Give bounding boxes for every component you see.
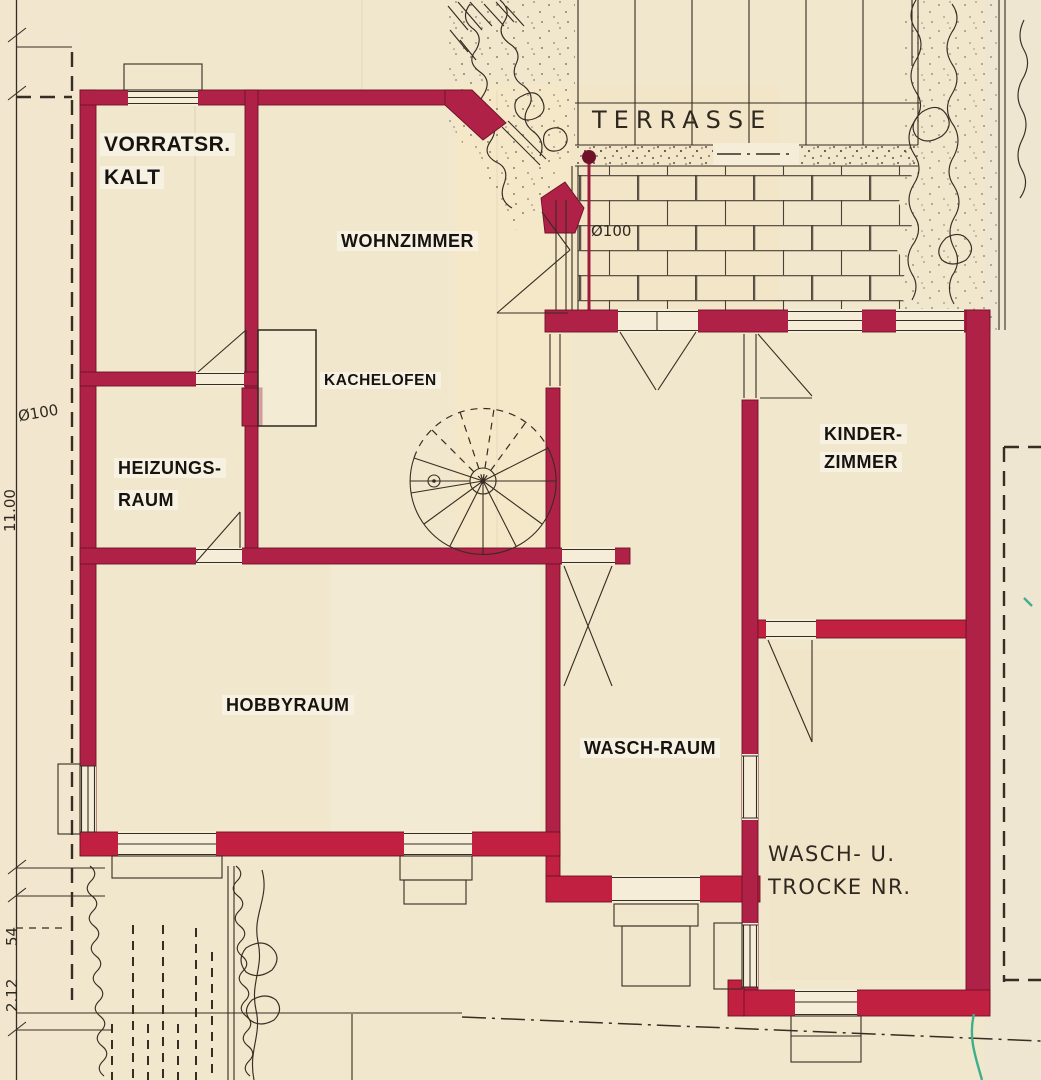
room-label-wasch-trockenraum-line2: TROCKE NR. (768, 871, 912, 904)
room-label-heizungsraum-line2: RAUM (114, 484, 226, 516)
terrace-gravel-band (575, 143, 918, 166)
room-label-wasch-trockenraum-line1: WASCH- U. (768, 838, 912, 871)
room-label-terrasse: TERRASSE (592, 106, 772, 134)
dimension-text-b: 54 (3, 927, 21, 946)
room-label-waschraum: WASCH-RAUM (580, 733, 720, 763)
room-label-heizungsraum-line1: HEIZUNGS- (114, 452, 226, 484)
dimension-text-c: 11.00 (1, 489, 19, 532)
room-label-kinderzimmer-line2: ZIMMER (820, 448, 907, 476)
room-label-hobbyraum: HOBBYRAUM (222, 690, 354, 720)
room-label-kinderzimmer-line1: KINDER- (820, 420, 907, 448)
kachelofen-stove (258, 330, 316, 426)
room-label-vorratsraum-line2: KALT (100, 161, 235, 194)
room-label-kinderzimmer: KINDER- ZIMMER (820, 420, 907, 476)
annotation-pipe-terrace: Ø100 (591, 222, 631, 240)
dimension-text-a: 2.12 (3, 979, 21, 1012)
room-label-vorratsraum-line1: VORRATSR. (100, 128, 235, 161)
room-label-wohnzimmer: WOHNZIMMER (337, 226, 478, 256)
floor-plan-sheet: VORRATSR. KALT WOHNZIMMER KACHELOFEN HEI… (0, 0, 1041, 1080)
room-label-wasch-trockenraum: WASCH- U. TROCKE NR. (768, 838, 912, 904)
annotation-kachelofen: KACHELOFEN (320, 366, 441, 396)
room-label-heizungsraum: HEIZUNGS- RAUM (114, 452, 226, 516)
room-label-vorratsraum: VORRATSR. KALT (100, 128, 235, 194)
terrace-brick-paving (560, 160, 926, 325)
